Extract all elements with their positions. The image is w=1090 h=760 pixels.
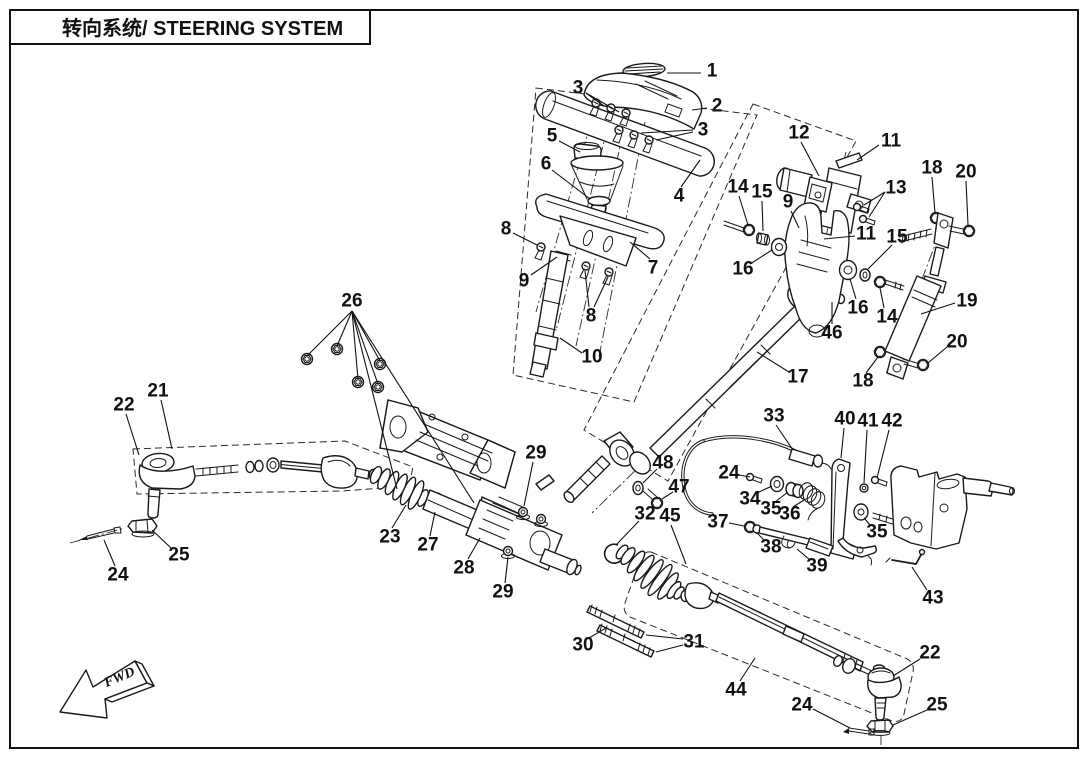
callout-label-29: 29 (525, 443, 546, 464)
callout-label-4: 4 (674, 186, 685, 207)
callout-label-17: 17 (787, 367, 808, 388)
steering-system-diagram: 转向系统/ STEERING SYSTEM (0, 0, 1090, 760)
small-washer (860, 484, 868, 492)
callout-label-30: 30 (572, 635, 593, 656)
callout-label-8: 8 (501, 219, 512, 240)
callout-label-9: 9 (519, 271, 530, 292)
linkage-bushing-a (786, 483, 803, 498)
parts-diagram-page: 转向系统/ STEERING SYSTEM (0, 0, 1090, 760)
callout-label-10: 10 (581, 347, 602, 368)
callout-label-36: 36 (779, 504, 800, 525)
callout-label-22: 22 (113, 395, 134, 416)
callout-label-9: 9 (783, 192, 794, 213)
callout-label-28: 28 (453, 558, 474, 579)
callout-label-2: 2 (712, 96, 723, 117)
callout-label-8: 8 (586, 306, 597, 327)
callout-label-42: 42 (881, 411, 902, 432)
callout-label-25: 25 (168, 545, 190, 566)
callout-label-41: 41 (857, 411, 879, 432)
callout-label-32: 32 (634, 504, 655, 525)
callout-label-21: 21 (147, 381, 169, 402)
pivot-washer-right (860, 269, 870, 281)
callout-label-3: 3 (698, 120, 709, 141)
callout-label-11: 11 (881, 131, 902, 152)
callout-label-14: 14 (727, 177, 749, 198)
callout-label-23: 23 (379, 527, 400, 548)
damper-nut-bottom (875, 347, 886, 358)
callout-label-43: 43 (922, 588, 943, 609)
callout-label-15: 15 (751, 182, 773, 203)
callout-label-5: 5 (547, 126, 558, 147)
callout-label-37: 37 (707, 512, 728, 533)
callout-label-18: 18 (921, 158, 942, 179)
callout-label-38: 38 (760, 537, 781, 558)
callout-label-47: 47 (668, 477, 689, 498)
callout-label-34: 34 (739, 489, 761, 510)
callout-label-20: 20 (955, 162, 976, 183)
callout-label-33: 33 (763, 406, 784, 427)
callout-label-22: 22 (919, 643, 940, 664)
callout-label-35: 35 (866, 522, 888, 543)
callout-label-16: 16 (847, 298, 868, 319)
callout-label-24: 24 (718, 463, 740, 484)
callout-label-31: 31 (683, 632, 705, 653)
washer (246, 462, 254, 473)
callout-label-24: 24 (107, 565, 129, 586)
callout-label-44: 44 (725, 680, 747, 701)
callout-label-40: 40 (834, 409, 855, 430)
callout-label-29: 29 (492, 582, 513, 603)
callout-label-48: 48 (652, 453, 673, 474)
callout-label-1: 1 (707, 61, 718, 82)
washer (255, 461, 263, 472)
callout-label-14: 14 (876, 307, 898, 328)
drawing-border (10, 10, 1078, 748)
jam-nut (267, 458, 279, 472)
callout-label-11: 11 (856, 224, 877, 245)
callout-label-16: 16 (732, 259, 753, 280)
page-title: 转向系统/ STEERING SYSTEM (62, 16, 343, 40)
callout-label-24: 24 (791, 695, 813, 716)
callout-label-19: 19 (956, 291, 977, 312)
callout-label-6: 6 (541, 154, 552, 175)
callout-label-25: 25 (926, 695, 948, 716)
callout-label-13: 13 (885, 178, 906, 199)
callout-label-46: 46 (821, 323, 842, 344)
callout-label-20: 20 (946, 332, 967, 353)
pivot-bushing-right (840, 261, 857, 280)
callout-label-3: 3 (573, 78, 584, 99)
callout-label-45: 45 (659, 506, 681, 527)
callout-label-26: 26 (341, 291, 362, 312)
callout-label-7: 7 (648, 258, 659, 279)
pivot-bushing-left (772, 239, 787, 256)
callout-label-39: 39 (806, 556, 827, 577)
callout-label-18: 18 (852, 371, 873, 392)
joint-washer (633, 482, 643, 495)
callout-label-15: 15 (886, 227, 908, 248)
linkage-washer (771, 477, 784, 492)
callout-label-12: 12 (788, 123, 809, 144)
callout-label-27: 27 (417, 535, 438, 556)
